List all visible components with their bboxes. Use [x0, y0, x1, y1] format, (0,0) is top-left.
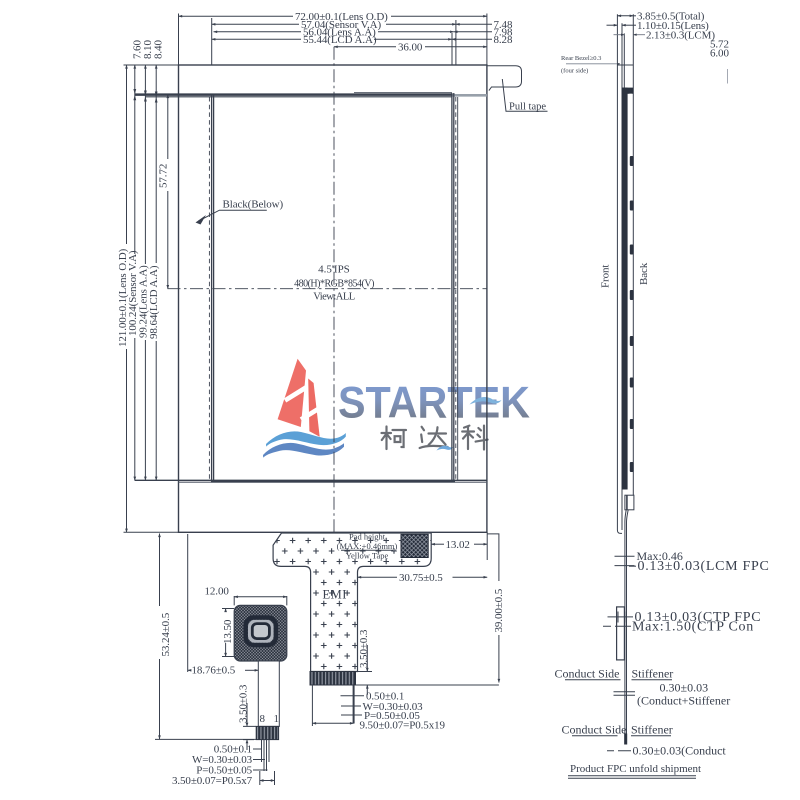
svg-text:Pull tape: Pull tape: [509, 102, 546, 113]
svg-text:Yellow Tape: Yellow Tape: [346, 551, 389, 561]
svg-text:39.00±0.5: 39.00±0.5: [493, 588, 505, 632]
svg-text:8.28: 8.28: [494, 34, 513, 46]
svg-text:EMI: EMI: [323, 588, 347, 602]
svg-text:Stiffener: Stiffener: [632, 667, 674, 681]
svg-text:1: 1: [274, 713, 279, 725]
svg-text:Conduct Side: Conduct Side: [562, 723, 627, 737]
svg-text:4.5'IPS: 4.5'IPS: [318, 264, 350, 276]
svg-text:Conduct Side: Conduct Side: [555, 667, 620, 681]
svg-text:3.50±0.3: 3.50±0.3: [358, 629, 370, 668]
svg-text:Black(Below): Black(Below): [223, 199, 284, 211]
svg-text:0.13±0.03(LCM FPC: 0.13±0.03(LCM FPC: [638, 559, 770, 574]
svg-text:57.72: 57.72: [158, 164, 170, 188]
svg-text:Rear Bezel≥0.3: Rear Bezel≥0.3: [561, 55, 601, 62]
svg-text:98.64(LCD A.A): 98.64(LCD A.A): [148, 265, 160, 339]
svg-text:Back: Back: [638, 262, 650, 285]
svg-text:Max:1.50(CTP Con: Max:1.50(CTP Con: [632, 620, 754, 635]
svg-text:13.02: 13.02: [446, 539, 470, 551]
svg-text:Stiffener: Stiffener: [631, 723, 673, 737]
svg-text:55.44(LCD A.A): 55.44(LCD A.A): [303, 34, 377, 46]
svg-text:480(H)*RGB*854(V): 480(H)*RGB*854(V): [294, 279, 374, 290]
svg-text:Front: Front: [600, 265, 612, 288]
svg-text:0.30±0.03(Conduct: 0.30±0.03(Conduct: [633, 743, 727, 757]
svg-text:53.24±0.5: 53.24±0.5: [160, 612, 172, 656]
svg-text:Product FPC unfold shipment: Product FPC unfold shipment: [570, 763, 701, 775]
svg-text:(MAX:+0.46mm): (MAX:+0.46mm): [337, 541, 398, 551]
svg-text:8: 8: [260, 713, 266, 725]
svg-text:(Conduct+Stiffener: (Conduct+Stiffener: [637, 694, 730, 708]
svg-text:30.75±0.5: 30.75±0.5: [399, 572, 443, 584]
svg-text:STARTEK: STARTEK: [338, 379, 530, 428]
svg-text:8.40: 8.40: [153, 40, 165, 59]
svg-text:3.50±0.3: 3.50±0.3: [237, 684, 249, 723]
svg-text:(four side): (four side): [561, 68, 588, 75]
svg-text:13.50: 13.50: [222, 619, 234, 644]
svg-text:12.00: 12.00: [205, 586, 230, 598]
svg-text:2.13±0.3(LCM): 2.13±0.3(LCM): [646, 29, 715, 41]
svg-text:View:ALL: View:ALL: [313, 292, 355, 303]
svg-text:0.30±0.03: 0.30±0.03: [660, 681, 709, 695]
svg-text:18.76±0.5: 18.76±0.5: [192, 665, 236, 677]
svg-text:36.00: 36.00: [398, 41, 423, 53]
svg-text:9.50±0.07=P0.5x19: 9.50±0.07=P0.5x19: [360, 719, 446, 731]
svg-text:6.00: 6.00: [710, 48, 729, 60]
svg-text:3.50±0.07=P0.5x7: 3.50±0.07=P0.5x7: [172, 775, 253, 787]
